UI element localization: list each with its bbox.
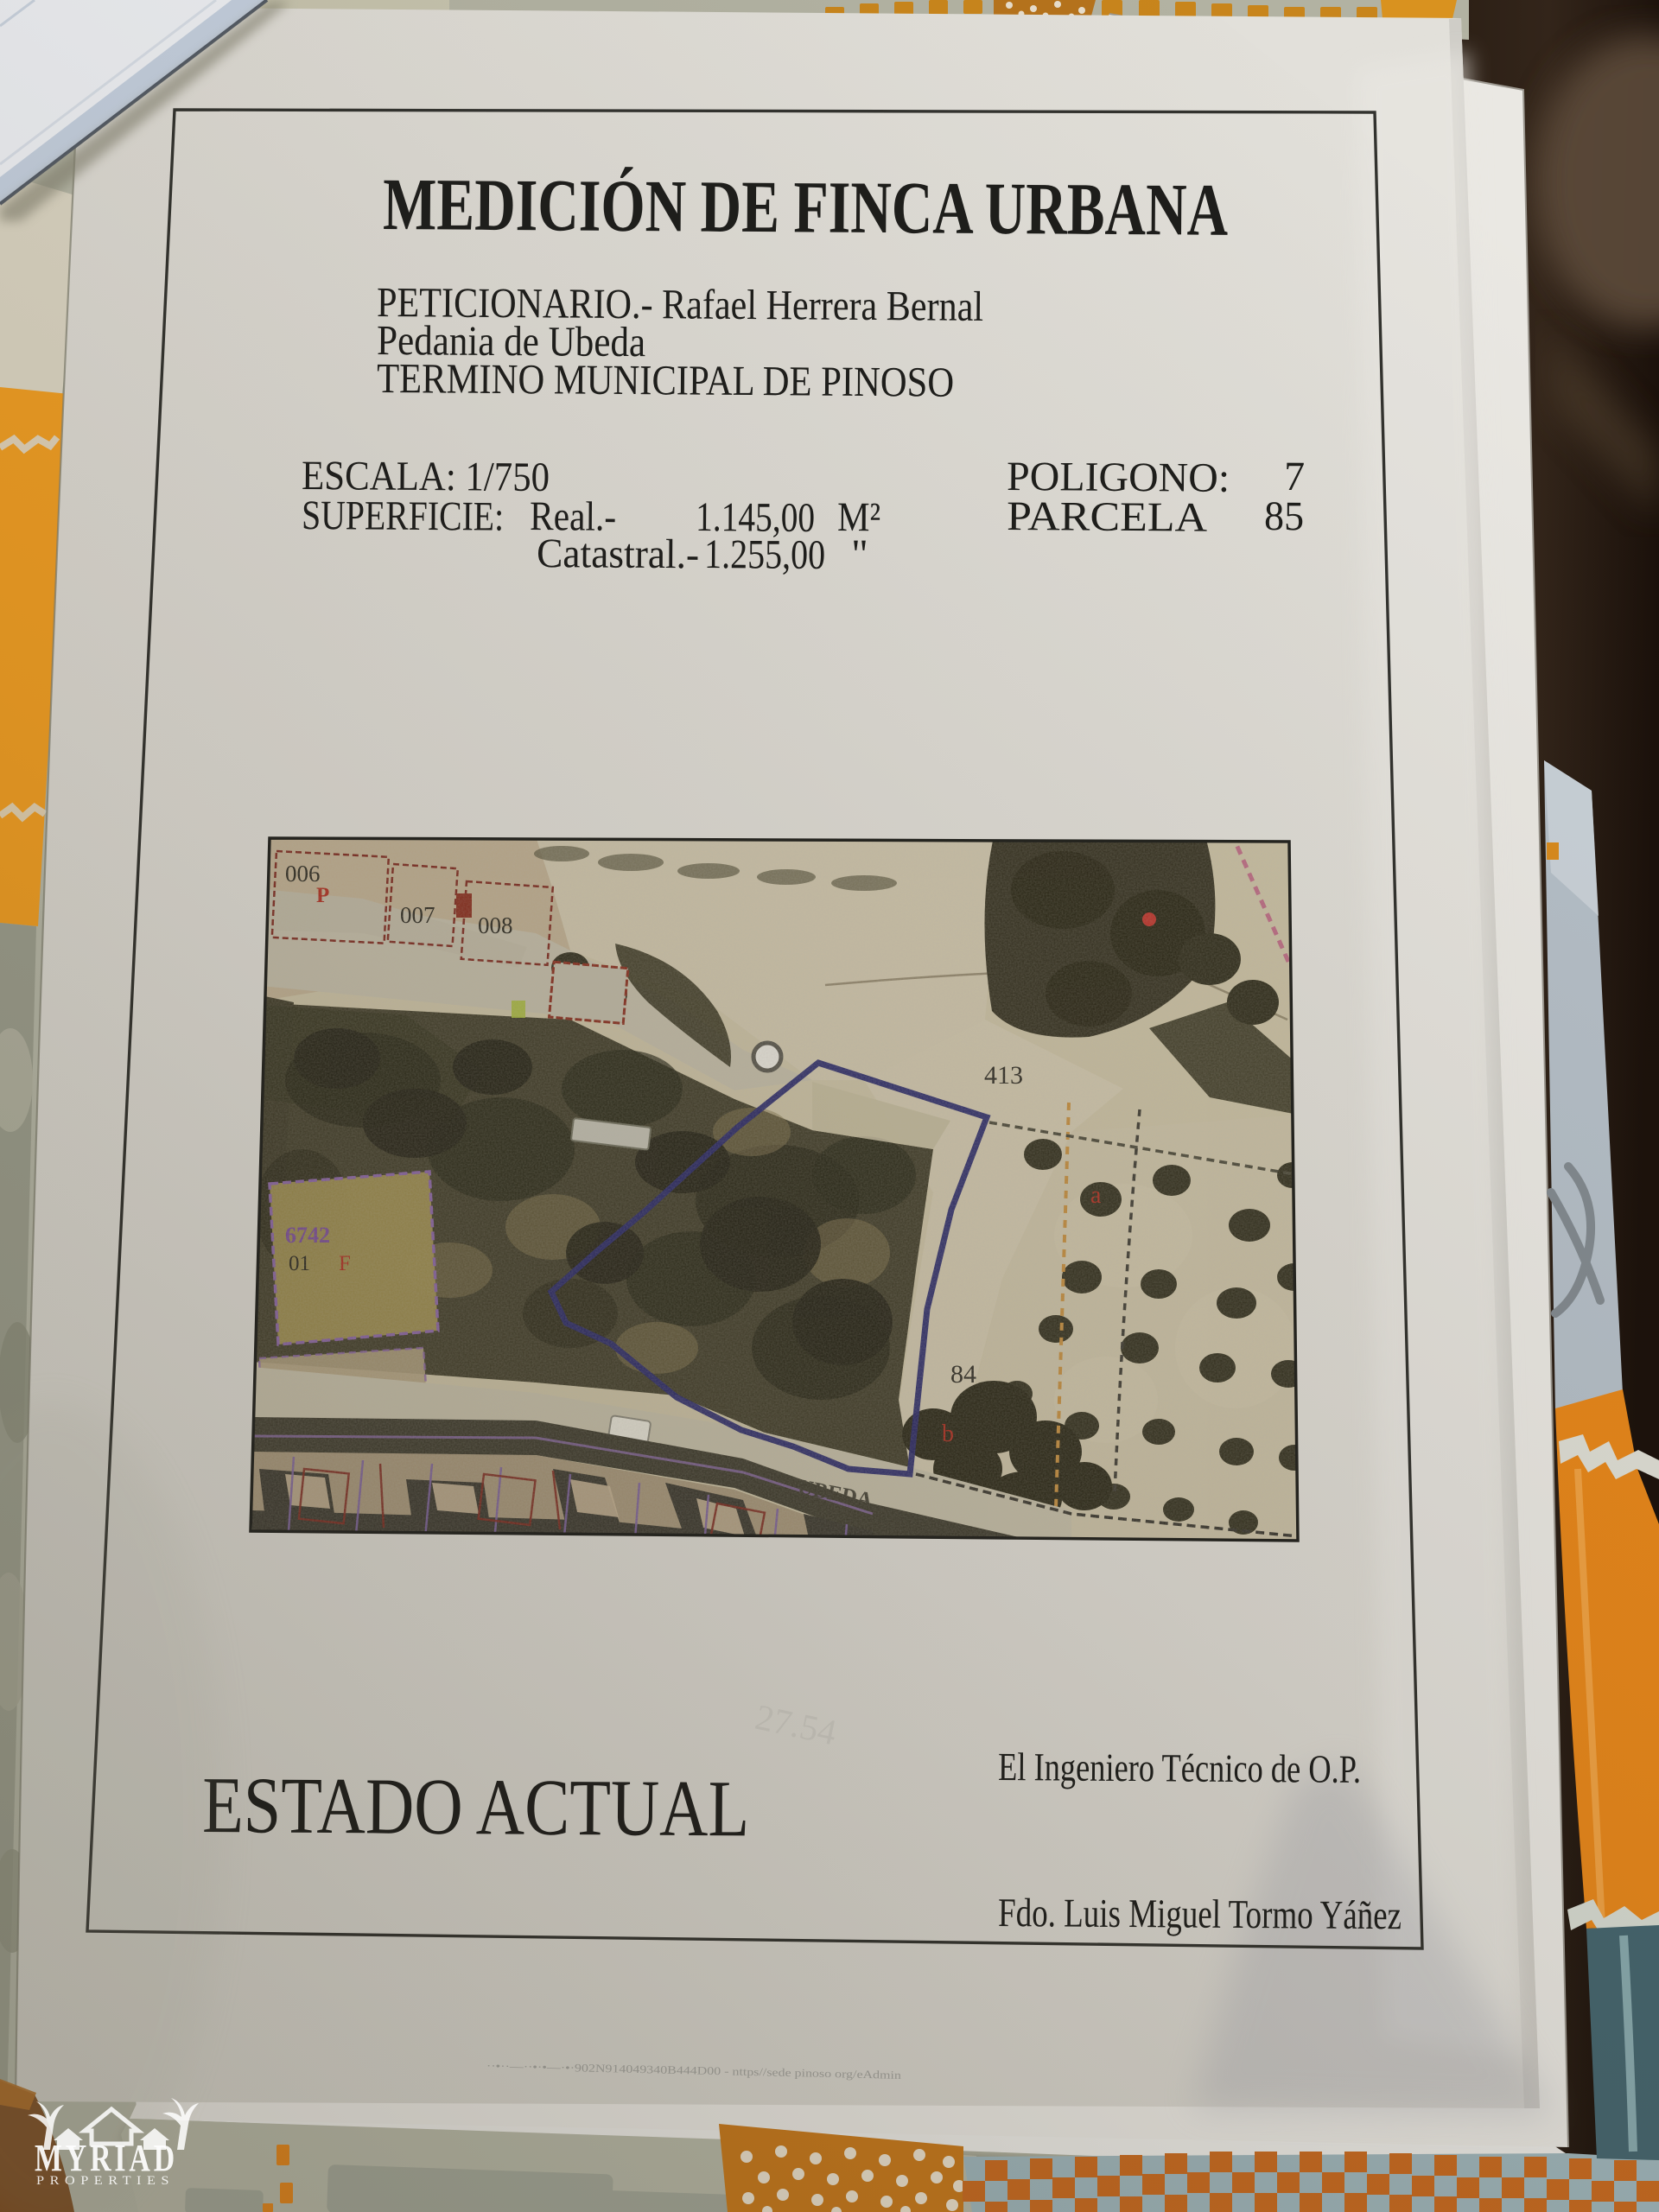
svg-text:MYRIAD: MYRIAD	[35, 2137, 178, 2179]
svg-text:PROPERTIES: PROPERTIES	[36, 2174, 175, 2188]
